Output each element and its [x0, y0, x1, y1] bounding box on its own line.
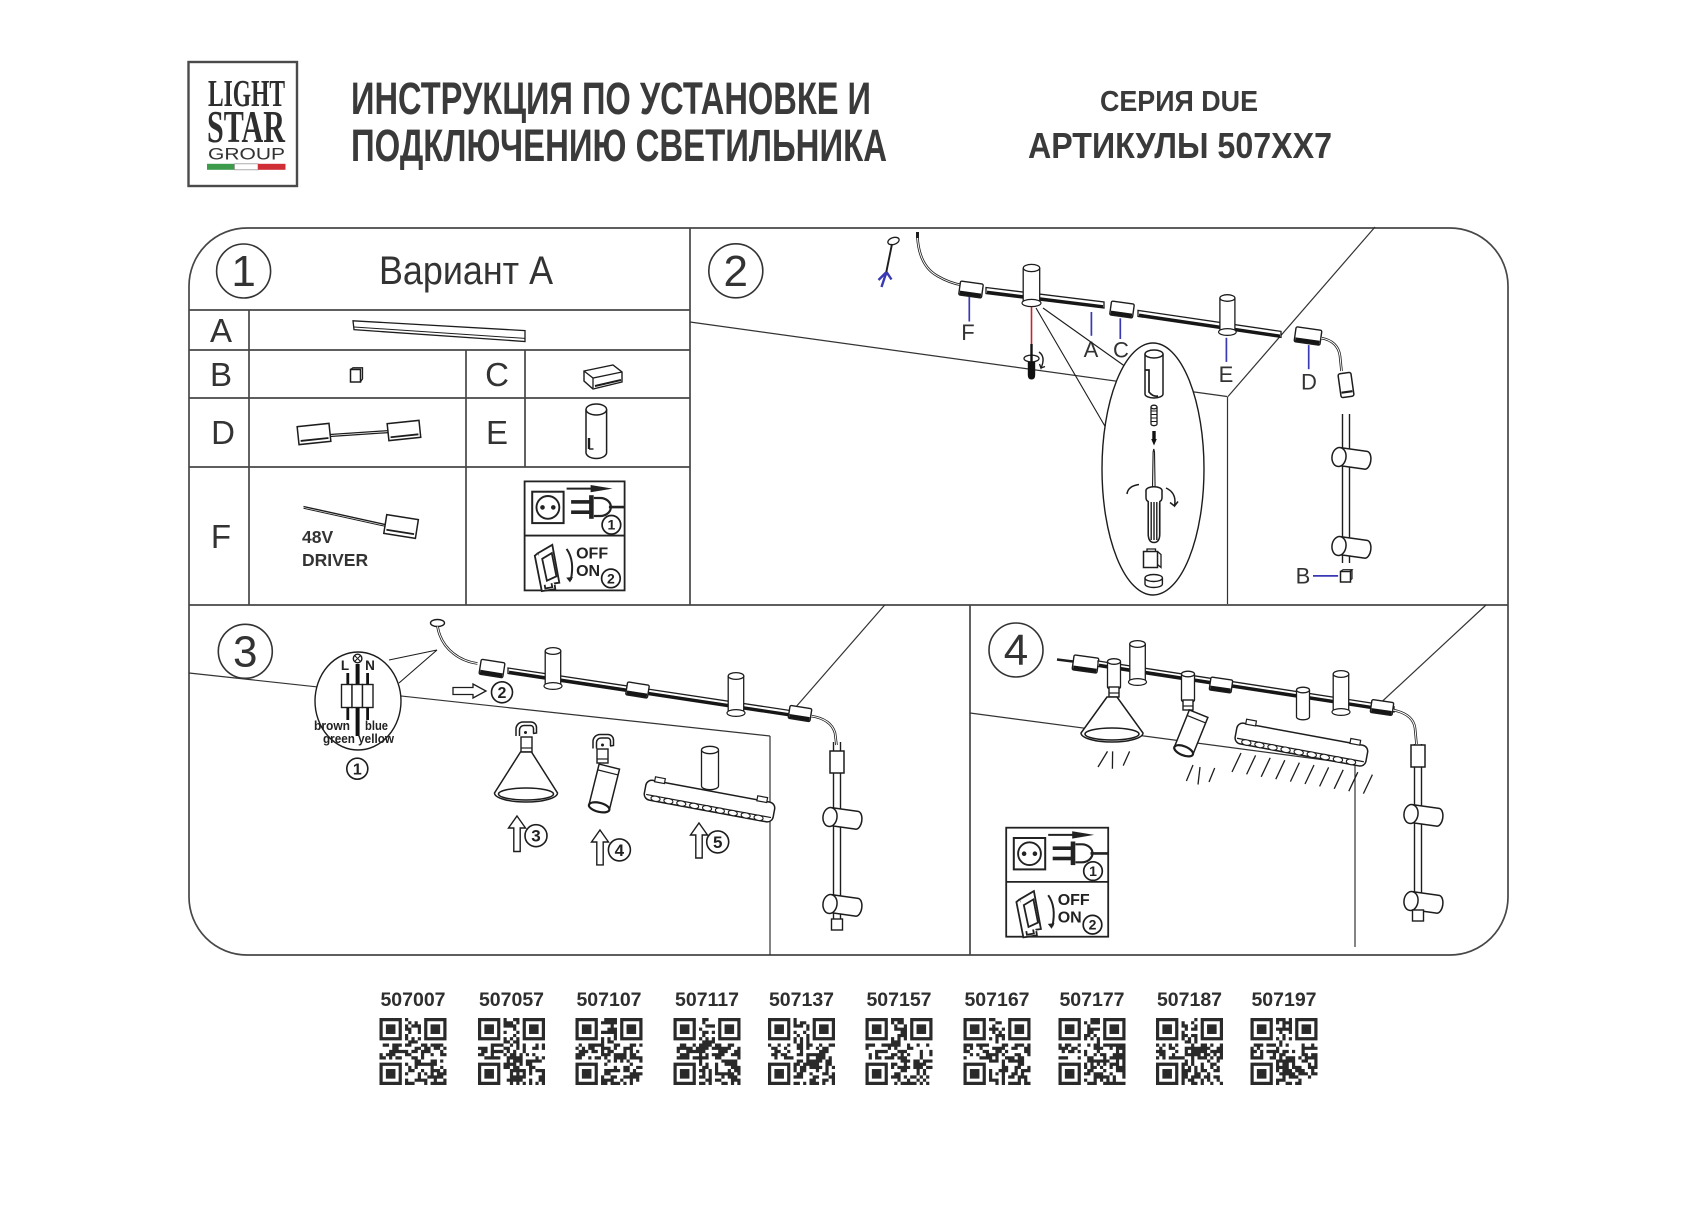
svg-text:1: 1: [608, 517, 616, 533]
svg-text:DRIVER: DRIVER: [302, 550, 368, 570]
svg-text:1: 1: [1089, 863, 1097, 879]
svg-text:2: 2: [498, 685, 507, 702]
svg-text:4: 4: [1004, 626, 1028, 675]
svg-text:507117: 507117: [675, 989, 739, 1011]
svg-text:OFF: OFF: [576, 546, 608, 563]
svg-text:ON: ON: [576, 563, 600, 580]
svg-text:GROUP: GROUP: [208, 146, 285, 164]
svg-text:48V: 48V: [302, 527, 333, 547]
svg-text:E: E: [1219, 362, 1234, 387]
svg-text:D: D: [211, 414, 235, 451]
svg-text:507157: 507157: [866, 989, 931, 1011]
svg-text:1: 1: [353, 761, 362, 778]
svg-text:507137: 507137: [769, 989, 834, 1011]
svg-text:5: 5: [713, 833, 722, 852]
svg-text:507107: 507107: [576, 989, 641, 1011]
svg-text:507177: 507177: [1059, 989, 1124, 1011]
svg-text:507187: 507187: [1157, 989, 1222, 1011]
svg-text:СЕРИЯ DUE: СЕРИЯ DUE: [1100, 86, 1258, 118]
svg-text:A: A: [1084, 337, 1099, 362]
svg-text:1: 1: [231, 247, 255, 296]
svg-text:ИНСТРУКЦИЯ ПО УСТАНОВКЕ И: ИНСТРУКЦИЯ ПО УСТАНОВКЕ И: [351, 73, 871, 124]
svg-text:507007: 507007: [380, 989, 445, 1011]
svg-text:C: C: [1113, 338, 1129, 363]
svg-text:A: A: [210, 312, 232, 349]
svg-text:B: B: [1296, 564, 1311, 589]
svg-text:L: L: [341, 658, 349, 673]
svg-text:Вариант А: Вариант А: [379, 249, 553, 293]
svg-text:brown: brown: [314, 719, 350, 733]
svg-text:ON: ON: [1058, 909, 1082, 926]
svg-text:F: F: [211, 518, 231, 555]
svg-text:2: 2: [607, 570, 615, 586]
svg-text:E: E: [486, 414, 508, 451]
svg-text:B: B: [210, 356, 232, 393]
svg-text:2: 2: [724, 247, 748, 296]
svg-text:507057: 507057: [479, 989, 544, 1011]
svg-text:2: 2: [1089, 917, 1097, 933]
svg-text:OFF: OFF: [1058, 892, 1090, 909]
svg-text:N: N: [365, 658, 375, 673]
svg-text:STAR: STAR: [207, 101, 286, 152]
svg-text:507197: 507197: [1251, 989, 1316, 1011]
svg-text:3: 3: [233, 627, 257, 676]
svg-text:blue: blue: [365, 719, 388, 733]
svg-text:507167: 507167: [964, 989, 1029, 1011]
svg-text:F: F: [961, 320, 974, 345]
svg-text:4: 4: [615, 841, 625, 860]
svg-text:green yellow: green yellow: [323, 732, 394, 746]
svg-text:D: D: [1301, 370, 1317, 395]
svg-text:3: 3: [531, 827, 540, 846]
svg-text:C: C: [485, 356, 509, 393]
svg-text:АРТИКУЛЫ 507XX7: АРТИКУЛЫ 507XX7: [1028, 125, 1332, 166]
svg-text:ПОДКЛЮЧЕНИЮ СВЕТИЛЬНИКА: ПОДКЛЮЧЕНИЮ СВЕТИЛЬНИКА: [351, 120, 887, 171]
